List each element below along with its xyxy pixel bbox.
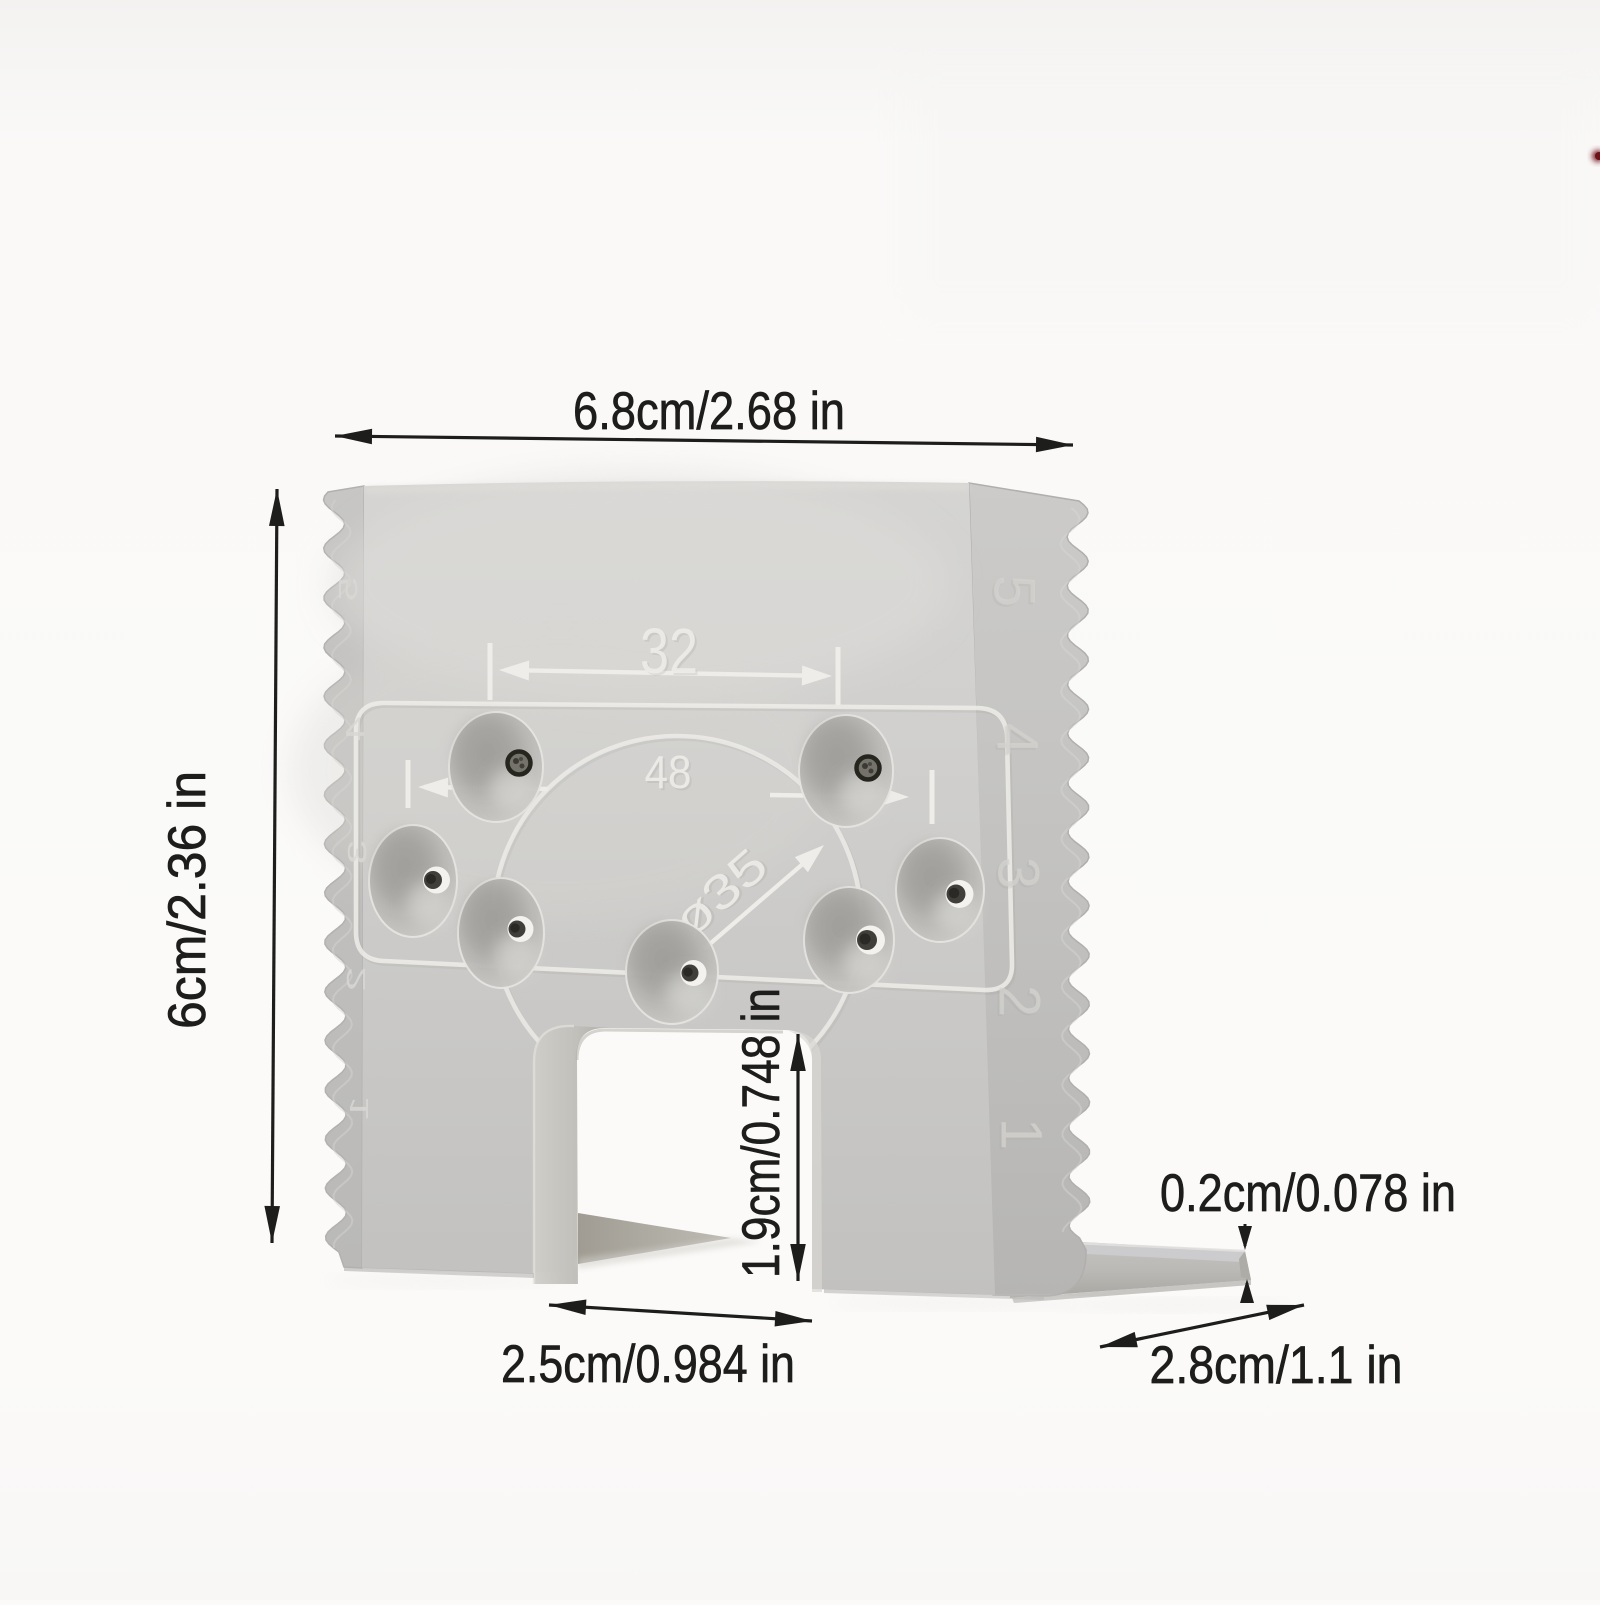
svg-text:5: 5 — [982, 575, 1047, 607]
svg-text:48: 48 — [645, 746, 692, 798]
svg-text:1: 1 — [989, 1118, 1054, 1150]
svg-text:6.8cm/2.68 in: 6.8cm/2.68 in — [573, 382, 845, 441]
svg-text:1: 1 — [344, 1096, 373, 1121]
svg-text:2.5cm/0.984 in: 2.5cm/0.984 in — [501, 1335, 795, 1394]
svg-text:2.8cm/1.1 in: 2.8cm/1.1 in — [1150, 1336, 1403, 1395]
svg-text:0.2cm/0.078 in: 0.2cm/0.078 in — [1160, 1164, 1456, 1223]
svg-text:3: 3 — [342, 840, 371, 865]
svg-text:4: 4 — [340, 717, 369, 742]
svg-text:2: 2 — [987, 985, 1052, 1017]
svg-text:5: 5 — [333, 577, 362, 602]
svg-text:1.9cm/0.748 in: 1.9cm/0.748 in — [732, 988, 791, 1278]
svg-text:3: 3 — [986, 857, 1051, 889]
svg-text:2: 2 — [341, 967, 370, 992]
svg-text:32: 32 — [640, 615, 698, 687]
svg-text:6cm/2.36 in: 6cm/2.36 in — [158, 771, 217, 1029]
svg-text:4: 4 — [985, 723, 1050, 755]
